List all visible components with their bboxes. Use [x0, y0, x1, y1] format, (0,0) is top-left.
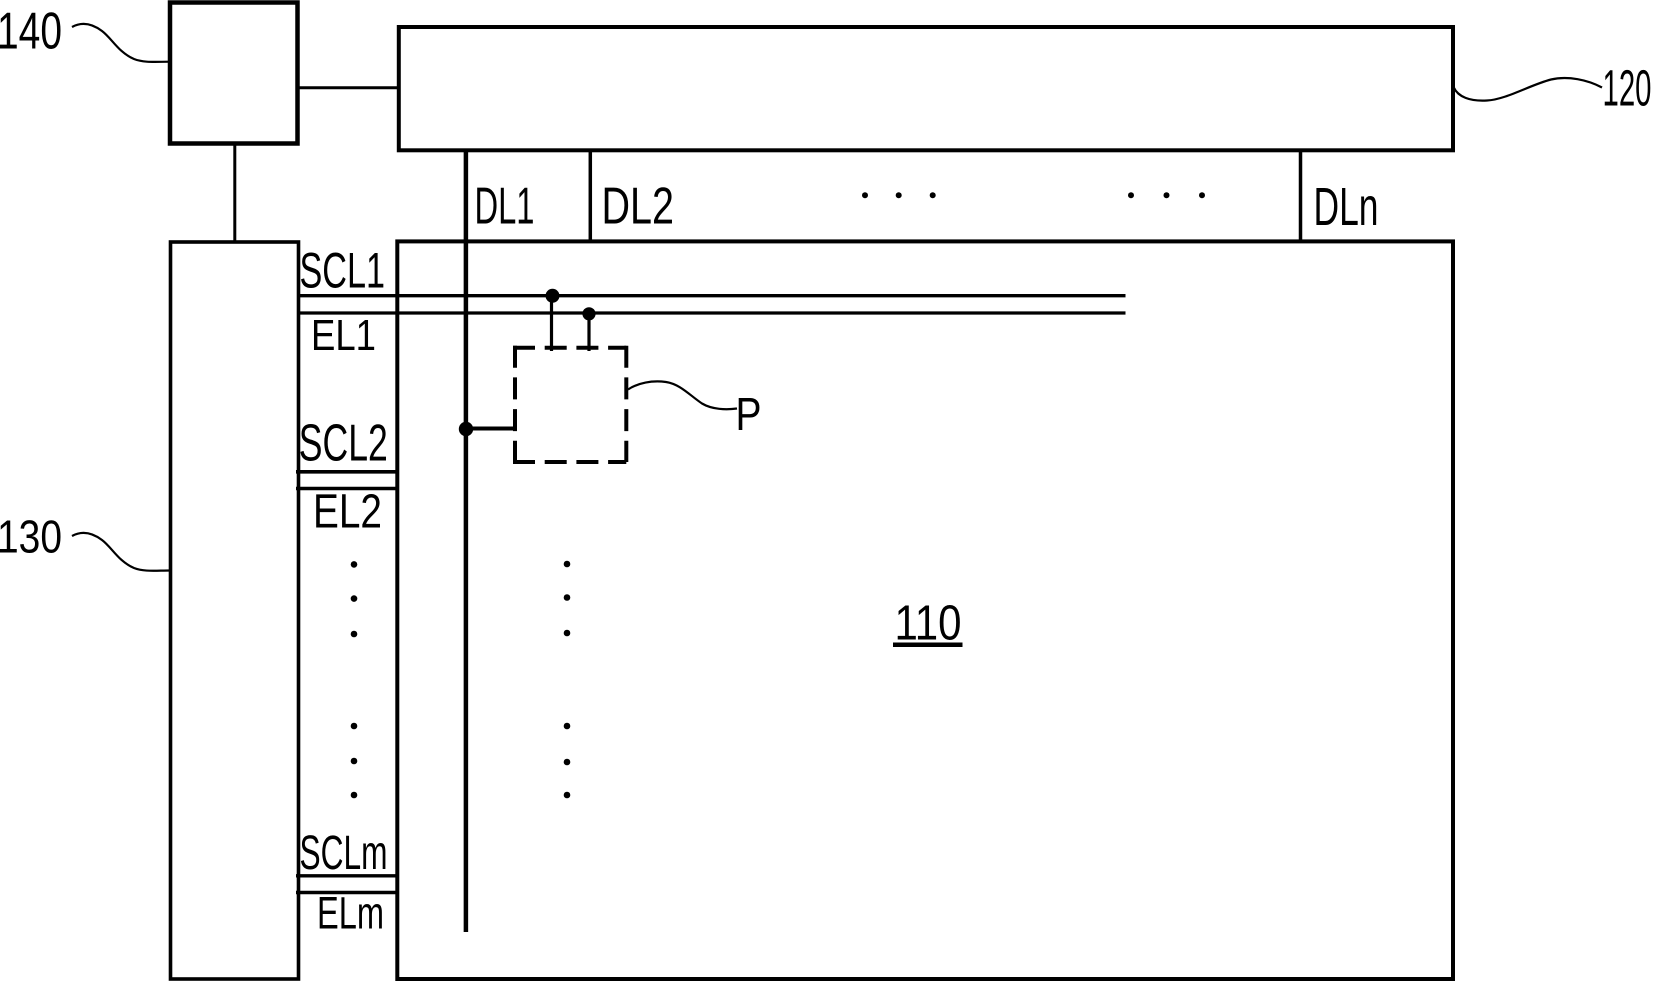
- svg-text:120: 120: [1603, 59, 1652, 116]
- svg-text:DL2: DL2: [602, 176, 675, 234]
- svg-text:P: P: [736, 388, 762, 440]
- svg-text:EL1: EL1: [311, 312, 376, 360]
- svg-text:DL1: DL1: [475, 176, 535, 234]
- svg-text:140: 140: [0, 3, 62, 61]
- svg-text:ELm: ELm: [317, 888, 384, 939]
- svg-text:EL2: EL2: [313, 485, 382, 538]
- svg-text:130: 130: [0, 510, 62, 562]
- svg-text:DLn: DLn: [1314, 177, 1379, 237]
- svg-text:SCL1: SCL1: [300, 243, 386, 299]
- svg-text:SCLm: SCLm: [300, 827, 388, 880]
- svg-text:110: 110: [895, 596, 962, 651]
- svg-text:SCL2: SCL2: [299, 414, 388, 472]
